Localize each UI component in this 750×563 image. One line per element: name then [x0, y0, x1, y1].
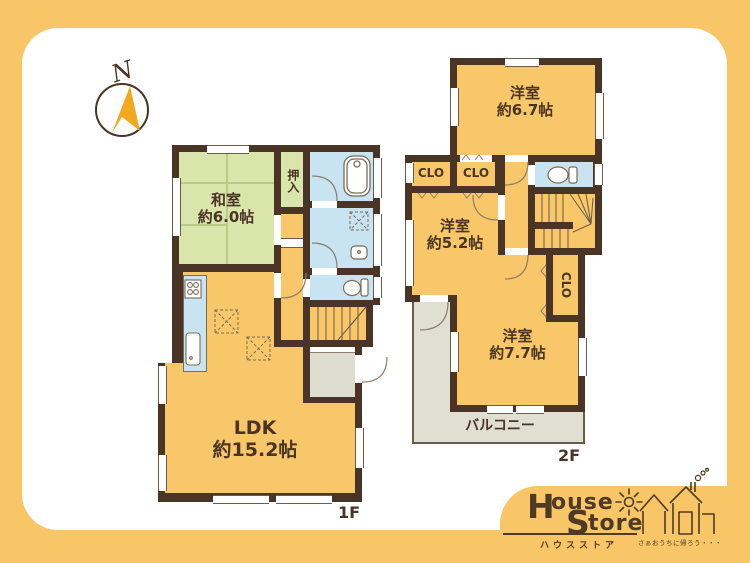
- ldk-label: LDK 約15.2帖: [175, 418, 335, 462]
- oshiire-label: 押入: [282, 157, 302, 205]
- kitchen-sink-icon: [186, 333, 200, 365]
- houses-icon: [638, 468, 723, 536]
- washer-icon: [350, 212, 368, 230]
- bathtub-icon: [344, 156, 370, 196]
- sink-icon: [351, 246, 367, 259]
- closet2-label: CLO: [457, 165, 495, 183]
- toilet-icon: [548, 167, 577, 183]
- washitsu-label: 和室 約6.0帖: [176, 192, 276, 227]
- logo-tagline: さぁおうちに帰ろう・・・: [638, 537, 722, 547]
- room-name: LDK: [234, 418, 277, 440]
- floor2-tag: 2F: [558, 446, 580, 465]
- yoshitsu77-label: 洋室 約7.7帖: [455, 328, 580, 363]
- floor1-tag: 1F: [338, 503, 360, 522]
- room-size: 約5.2帖: [427, 235, 484, 252]
- room-size: 約15.2帖: [213, 440, 298, 462]
- closet1-label: CLO: [412, 165, 450, 183]
- toilet-icon: [344, 279, 369, 296]
- compass-icon: N: [90, 55, 160, 145]
- closet3-label: CLO: [556, 267, 574, 303]
- yoshitsu52-label: 洋室 約5.2帖: [412, 218, 498, 253]
- compass-n-label: N: [107, 55, 138, 89]
- stove-icon: [185, 280, 201, 298]
- room-name: 押入: [285, 169, 299, 193]
- floorplan-canvas: N: [0, 0, 750, 563]
- room-size: 約7.7帖: [489, 345, 546, 362]
- room-name: 洋室: [440, 218, 470, 235]
- logo-underline: [503, 533, 637, 535]
- room-name: 洋室: [510, 85, 540, 102]
- room-size: 約6.7帖: [497, 102, 554, 119]
- yoshitsu67-label: 洋室 約6.7帖: [460, 85, 590, 120]
- room-name: 和室: [211, 192, 241, 209]
- balcony-label: バルコニー: [430, 413, 570, 439]
- counter-box-icon: [215, 310, 270, 360]
- room-name: 洋室: [502, 328, 532, 345]
- stairs-wall-stub: [535, 222, 573, 229]
- stairs-treads: [318, 307, 366, 340]
- logo-kana: ハウスストア: [540, 538, 618, 551]
- room-size: 約6.0帖: [198, 209, 255, 226]
- stairs-treads: [542, 194, 593, 248]
